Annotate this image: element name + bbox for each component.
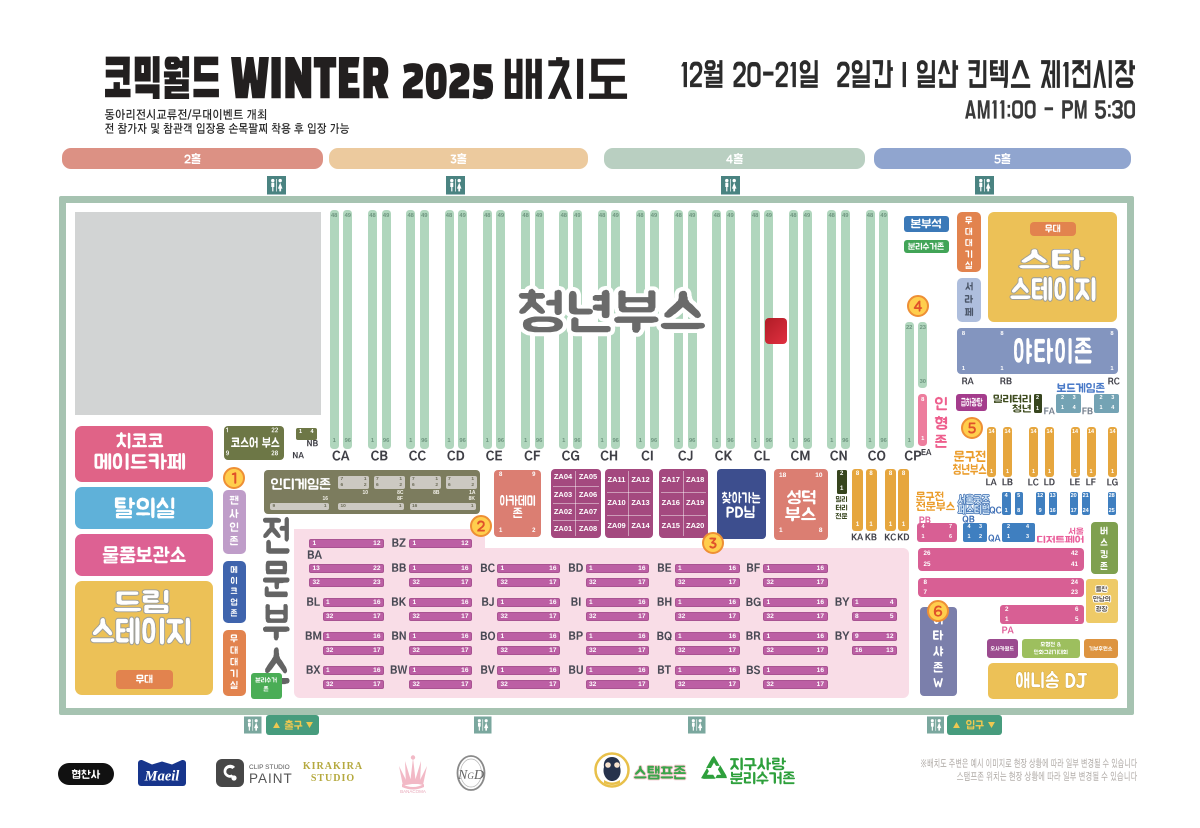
- svg-text:CLIP STUDIO: CLIP STUDIO: [249, 764, 290, 771]
- svg-text:PAINT: PAINT: [249, 771, 293, 786]
- svg-text:BANACOMA: BANACOMA: [400, 789, 426, 794]
- svg-text:NGD: NGD: [457, 768, 484, 783]
- svg-text:Maeil: Maeil: [144, 769, 180, 785]
